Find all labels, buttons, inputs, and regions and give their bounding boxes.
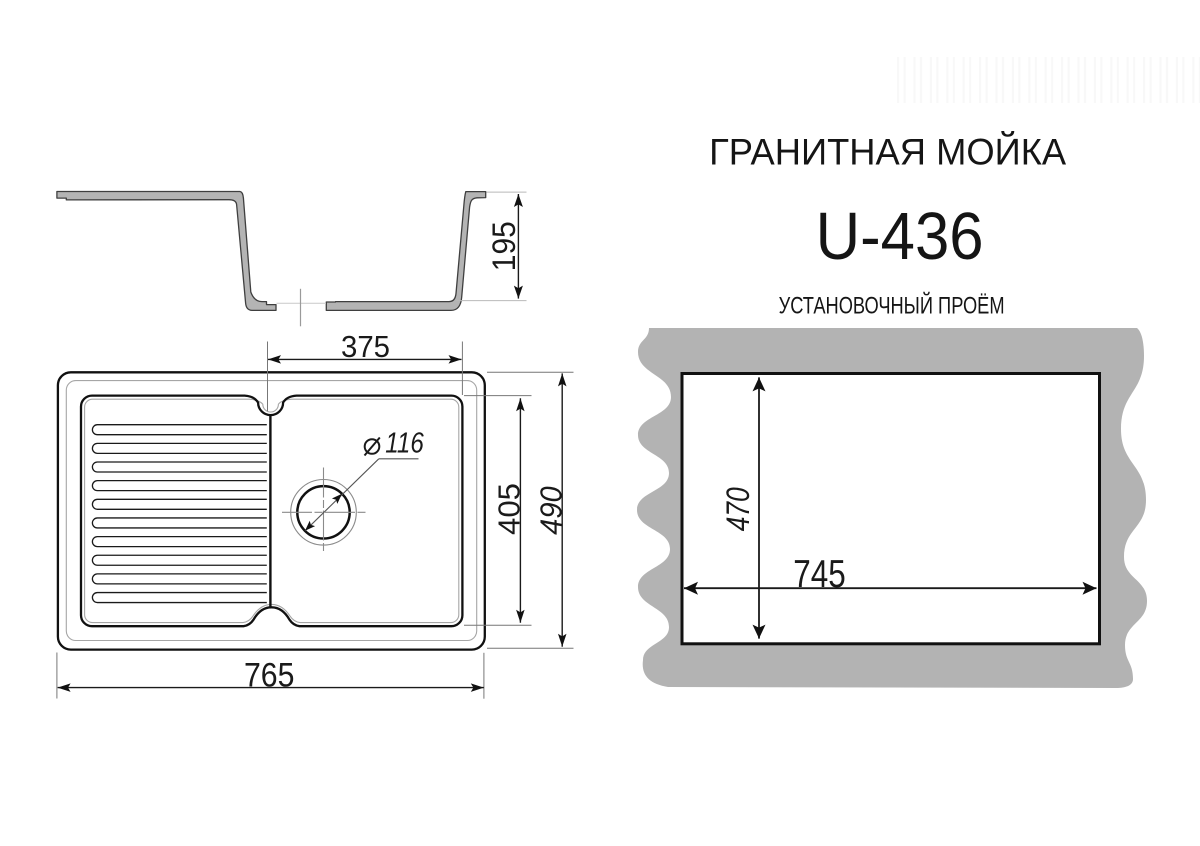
svg-text:490: 490 [534,486,569,534]
svg-text:ГРАНИТНАЯ МОЙКА: ГРАНИТНАЯ МОЙКА [709,130,1066,172]
svg-text:470: 470 [720,487,756,531]
svg-text:U-436: U-436 [816,199,984,274]
svg-text:405: 405 [491,483,526,535]
svg-text:375: 375 [341,329,390,364]
svg-text:116: 116 [385,428,424,460]
svg-text:745: 745 [793,553,846,596]
svg-text:УСТАНОВОЧНЫЙ ПРОЁМ: УСТАНОВОЧНЫЙ ПРОЁМ [779,292,1005,320]
svg-text:195: 195 [486,221,522,271]
svg-text:765: 765 [244,657,295,695]
